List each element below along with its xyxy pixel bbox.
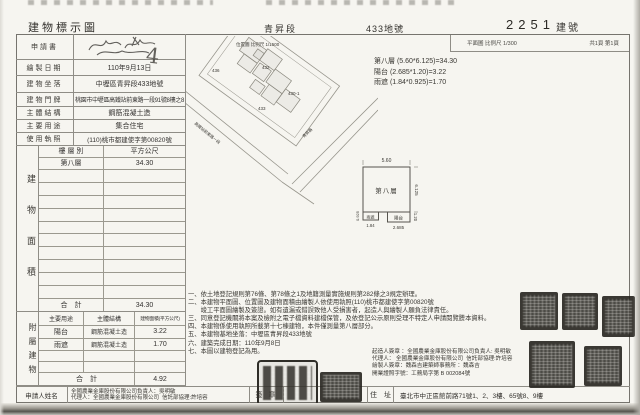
total-label: 合 計 — [39, 299, 104, 311]
table-row — [39, 222, 185, 235]
table-row — [39, 247, 185, 260]
table-row — [39, 170, 185, 183]
page-title: 建物標示圖 — [28, 19, 98, 35]
area-calculations: 第八層 (5.60*6.125)=34.30 陽台 (2.685*1.20)=3… — [374, 57, 457, 89]
scan-bottom-shadow — [0, 403, 640, 415]
dim-width: 5.60 — [382, 158, 392, 164]
dim-canopy-height: 0.925 — [355, 210, 360, 221]
field-value-application — [74, 34, 185, 59]
field-label-door-plate: 建物門牌 — [16, 93, 74, 106]
note-line: 五、本建物基地坐落：中壢區青昇段433地號 — [188, 331, 630, 339]
field-label-application: 申請書 — [16, 34, 74, 59]
table-row: 陽台 鋼筋混凝土造 3.22 — [39, 326, 185, 339]
floor-plan: 5.60 第八層 6.125 陽台 2.685 1.20 雨遮 1.84 0.9… — [348, 150, 466, 255]
field-label-building-site: 建物坐落 — [16, 76, 74, 92]
table-row — [39, 351, 185, 362]
column-header-floor: 樓 層 別 — [39, 146, 104, 157]
architect-name-seal-icon — [584, 346, 622, 386]
total-area-value: 34.30 — [104, 299, 185, 311]
architect-office-seal-icon — [529, 341, 575, 388]
handwriting-scribble-icon — [75, 34, 183, 58]
annex-total-value: 4.92 — [135, 373, 185, 385]
table-row: 建物門牌 桃園市中壢區高鐵站前東路一段91號8樓之8 — [16, 93, 185, 107]
table-row — [39, 362, 185, 373]
dim-balcony-width: 2.685 — [393, 225, 405, 230]
field-value-main-use: 集合住宅 — [74, 120, 185, 132]
room-label: 第八層 — [375, 186, 398, 195]
column-header-structure: 主體結構 — [84, 312, 135, 325]
calc-canopy: 雨遮 (1.84*0.925)=1.70 — [374, 78, 457, 89]
applicant-value: 全國農業金庫股份有限公司負責人：吳明敏 代理人：全國農業金庫股份有限公司 信託部… — [68, 387, 250, 403]
table-row — [39, 196, 185, 209]
table-row — [39, 260, 185, 273]
building-number: 2251 — [506, 17, 555, 32]
dim-balcony-height: 1.20 — [413, 213, 418, 222]
building-number-suffix: 建號 — [556, 19, 580, 34]
table-header-row: 主要用途 主體結構 建物面積(平方公尺) — [39, 312, 185, 326]
field-value-structure: 鋼筋混凝土造 — [74, 107, 185, 119]
road-name-left: 高鐵站前東路一段 — [193, 120, 222, 145]
field-value-draw-date: 110年9月13日 — [74, 60, 185, 75]
address-label: 住 址 — [368, 387, 394, 403]
scanned-building-survey-document: 建物標示圖 青昇段 433地號 2251 建號 平面圖 比例尺 1/300 共1… — [0, 0, 640, 415]
plan-scale-header: 平面圖 比例尺 1/300 共1頁 第1頁 — [450, 35, 629, 52]
annex-area-cell: 1.70 — [135, 339, 185, 351]
registry-stamp-icon — [320, 372, 362, 402]
signature-block: 起造人簽章 ：全國農業金庫股份有限公司負責人: 吳明敏 代理人： 全國農業金庫股… — [372, 349, 512, 378]
plan-scale-label: 平面圖 比例尺 1/300 — [451, 39, 517, 47]
scan-left-shadow — [0, 0, 4, 415]
field-label-structure: 主體結構 — [16, 107, 74, 119]
clipped-text-fragment — [28, 0, 213, 5]
calc-floor: 第八層 (5.60*6.125)=34.30 — [374, 57, 457, 68]
annex-structure-cell: 鋼筋混凝土造 — [84, 326, 135, 338]
floor-area-cell: 34.30 — [104, 158, 185, 169]
company-seal-icon — [562, 293, 598, 330]
annex-structure-cell: 鋼筋混凝土造 — [84, 339, 135, 351]
approval-stamp-icon — [257, 360, 318, 406]
dim-canopy-width: 1.84 — [366, 223, 375, 228]
field-value-building-site: 中壢區青昇段433地號 — [74, 76, 185, 92]
column-header-use: 主要用途 — [39, 312, 84, 325]
applicant-label: 申請人姓名 — [16, 387, 68, 403]
left-field-table: 申請書 繪製日期 110年9月13日 建物坐落 中壢區青昇段433地號 — [16, 34, 186, 386]
parcel-label: 436 — [212, 68, 220, 73]
table-row — [39, 183, 185, 196]
clipped-text-fragment — [266, 0, 461, 5]
calc-balcony: 陽台 (2.685*1.20)=3.22 — [374, 68, 457, 79]
page-count-label: 共1頁 第1頁 — [589, 39, 629, 47]
annex-area-cell: 3.22 — [135, 326, 185, 338]
dim-height: 6.125 — [414, 184, 419, 196]
company-seal-icon — [602, 296, 635, 337]
balcony-label: 陽台 — [394, 215, 403, 222]
field-value-door-plate: 桃園市中壢區高鐵站前東路一段91號8樓之8 — [74, 93, 185, 106]
annex-side-label: 附屬建物 — [16, 312, 39, 385]
parcel-label: 430-1 — [288, 91, 300, 96]
total-row: 合 計 4.92 — [39, 373, 185, 385]
drafter-signature-line: 繪製人簽章：魏森吉建築師事務所 ：魏森吉 — [372, 363, 512, 370]
field-value-use-permit: (110)桃市都建使字第00820號 — [74, 133, 185, 145]
address-value: 臺北市中正區館前路71號1、2、3樓、65號8、9樓 — [394, 387, 630, 403]
applicant-line2: 代理人：全國農業金庫股份有限公司 信託部協理:許培容 — [71, 395, 208, 402]
table-row: 使用執照 (110)桃市都建使字第00820號 — [16, 133, 185, 146]
table-row — [39, 273, 185, 286]
parcel-label: 433 — [258, 106, 266, 111]
column-header-annex-area: 建物面積(平方公尺) — [135, 312, 185, 325]
field-label-draw-date: 繪製日期 — [16, 60, 74, 75]
table-row: 繪製日期 110年9月13日 — [16, 60, 185, 76]
table-row: 雨遮 鋼筋混凝土造 1.70 — [39, 339, 185, 352]
table-header-row: 樓 層 別 平方公尺 — [39, 146, 185, 158]
table-row — [39, 286, 185, 299]
parcel-label: 432 — [262, 65, 270, 70]
table-row: 建物坐落 中壢區青昇段433地號 — [16, 76, 185, 93]
license-number-line: 開業證照字號：工務局字第 B 002084號 — [372, 371, 512, 378]
annex-building-table: 附屬建物 主要用途 主體結構 建物面積(平方公尺) 陽台 鋼筋混凝土造 3.22… — [16, 312, 185, 386]
scan-right-shadow — [633, 0, 640, 415]
company-seal-icon — [520, 292, 558, 330]
floor-cell: 第八層 — [39, 158, 104, 169]
building-area-table: 建物面積 樓 層 別 平方公尺 第八層 34.30 — [16, 146, 185, 312]
table-row — [39, 234, 185, 247]
canopy-label: 雨遮 — [367, 214, 375, 220]
column-header-sqm: 平方公尺 — [104, 146, 185, 157]
table-row — [39, 209, 185, 222]
annex-use-cell: 雨遮 — [39, 339, 84, 351]
building-area-side-label: 建物面積 — [16, 146, 39, 311]
table-row: 主要用途 集合住宅 — [16, 120, 185, 133]
table-row: 主體結構 鋼筋混凝土造 — [16, 107, 185, 120]
field-label-main-use: 主要用途 — [16, 120, 74, 132]
parcel-boundary — [199, 36, 340, 146]
total-row: 合 計 34.30 — [39, 299, 185, 311]
annex-use-cell: 陽台 — [39, 326, 84, 338]
field-label-use-permit: 使用執照 — [16, 133, 74, 145]
annex-total-label: 合 計 — [39, 373, 135, 385]
table-row: 第八層 34.30 — [39, 158, 185, 170]
road-name-right: 青昇路 — [301, 126, 314, 139]
